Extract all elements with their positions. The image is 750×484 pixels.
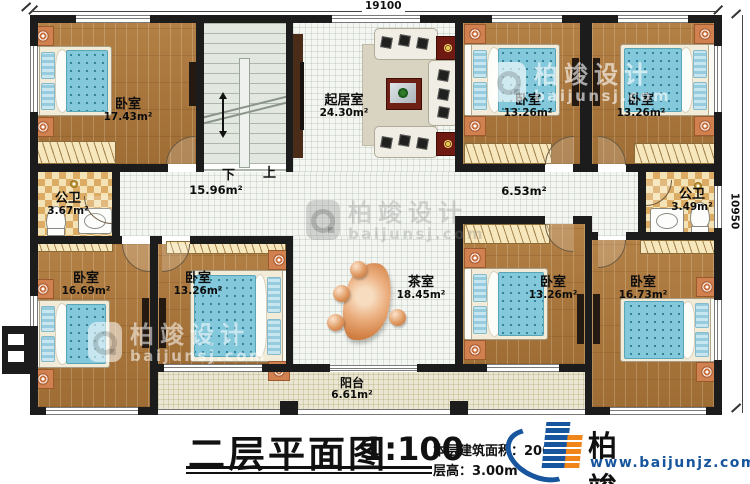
nightstand xyxy=(694,116,716,136)
tv-panel xyxy=(577,294,584,344)
dimension-tick xyxy=(713,5,723,15)
wall xyxy=(150,236,158,415)
title-underline xyxy=(186,466,432,469)
window xyxy=(164,364,262,372)
headboard xyxy=(465,45,472,115)
room-label-living: 起居室24.30m² xyxy=(320,94,369,119)
wardrobe xyxy=(634,143,718,164)
balcony-post xyxy=(280,401,298,415)
dimension-line-right xyxy=(742,15,743,413)
sofa xyxy=(374,28,438,60)
title-underline xyxy=(186,472,432,474)
bed xyxy=(32,46,112,116)
room-label-balcony: 阳台6.61m² xyxy=(331,377,372,401)
dimension-right-value: 10950 xyxy=(728,190,740,233)
room-label-tea-room: 茶室18.45m² xyxy=(397,276,446,301)
ceiling-lamp xyxy=(70,180,78,188)
sofa xyxy=(374,126,438,158)
balcony-railing xyxy=(158,409,588,415)
tv-panel xyxy=(572,58,579,106)
tea-stool xyxy=(333,285,350,302)
stair-down-label: 下 xyxy=(222,164,235,183)
pillow xyxy=(693,50,707,78)
break-mark xyxy=(731,9,741,18)
pillow xyxy=(41,52,55,79)
mattress xyxy=(66,304,106,365)
cushion xyxy=(398,34,411,47)
break-mark xyxy=(21,2,31,11)
arrow-up-head xyxy=(219,92,227,99)
tv-panel xyxy=(159,298,166,348)
room-label-bedroom-bottom-right: 卧室16.73m² xyxy=(619,276,668,301)
mattress xyxy=(66,50,108,113)
tv-panel xyxy=(142,298,149,348)
arrow-down-head xyxy=(219,131,227,138)
stair-direction-arrow xyxy=(222,96,224,134)
pillow xyxy=(41,336,55,362)
room-label-bedroom-bottom-left: 卧室16.69m² xyxy=(62,272,111,297)
cushion xyxy=(380,36,393,49)
room-label-bedroom-top-middle: 卧室13.26m² xyxy=(504,94,553,119)
company-site: www.baijunjz.com xyxy=(590,455,750,471)
wall xyxy=(580,15,592,172)
chimney-flue xyxy=(8,334,24,345)
tea-stool xyxy=(350,261,367,278)
cushion xyxy=(398,134,411,147)
balcony-post xyxy=(450,401,468,415)
pillow xyxy=(267,319,281,354)
floor-height-text: 层高：3.00m xyxy=(433,460,518,479)
wardrobe xyxy=(464,143,552,164)
sliding-door xyxy=(330,365,417,371)
pillow xyxy=(41,306,55,332)
nightstand xyxy=(694,24,716,44)
pillow xyxy=(693,82,707,110)
wardrobe xyxy=(34,141,116,164)
wall xyxy=(190,236,290,244)
cushion xyxy=(380,136,393,149)
room-label-bedroom-bottom-mid-left: 卧室13.26m² xyxy=(174,272,223,297)
wall xyxy=(585,216,592,415)
window xyxy=(30,296,38,326)
tv-screen xyxy=(300,62,304,130)
wall xyxy=(286,15,293,172)
tea-stool xyxy=(327,314,344,331)
wall xyxy=(455,216,545,224)
window xyxy=(76,15,150,23)
floor-plan-canvas: 19100 10950 xyxy=(0,0,750,484)
wall xyxy=(455,15,463,172)
wardrobe xyxy=(640,240,716,254)
wall xyxy=(30,164,168,172)
logo-building-orange xyxy=(564,434,583,468)
tv-panel xyxy=(593,294,600,344)
dimension-tick xyxy=(28,5,38,15)
chimney-flue xyxy=(8,351,24,362)
pillow xyxy=(473,50,487,78)
window xyxy=(332,15,420,23)
room-label-hallway-right: 6.53m² xyxy=(501,185,546,198)
bed xyxy=(620,298,718,362)
tv-panel xyxy=(593,58,600,106)
bed xyxy=(32,300,110,368)
window xyxy=(714,186,722,228)
nightstand xyxy=(464,248,486,268)
window xyxy=(610,407,706,415)
floor-balcony xyxy=(158,372,588,410)
plant xyxy=(397,87,409,99)
window xyxy=(618,15,688,23)
toilet-tank xyxy=(47,228,65,236)
room-label-bathroom-right: 公卫3.49m² xyxy=(671,188,712,213)
tv-panel xyxy=(189,62,196,106)
window xyxy=(714,300,722,360)
headboard xyxy=(465,269,472,339)
stair-up-label: 上 xyxy=(263,162,276,181)
sink-basin xyxy=(656,213,678,229)
drawing-title: 二层平面图 xyxy=(188,424,388,478)
pillow xyxy=(267,277,281,312)
tea-stool xyxy=(389,309,406,326)
room-label-hallway-left: 15.96m² xyxy=(189,184,242,197)
pillow xyxy=(41,83,55,110)
window xyxy=(714,46,722,112)
window xyxy=(46,407,138,415)
cushion xyxy=(416,137,429,150)
room-label-bedroom-top-right: 卧室13.26m² xyxy=(617,94,666,119)
wall xyxy=(118,236,122,244)
wall xyxy=(112,164,120,244)
wall xyxy=(196,15,204,172)
window xyxy=(492,15,562,23)
pillow xyxy=(473,82,487,110)
wardrobe xyxy=(464,224,550,244)
break-mark xyxy=(731,403,741,412)
room-label-bedroom-top-left: 卧室17.43m² xyxy=(104,98,153,123)
mattress xyxy=(624,301,684,358)
wall xyxy=(455,164,545,172)
wall xyxy=(455,216,463,372)
wall xyxy=(573,164,598,172)
window xyxy=(30,46,38,112)
pillow xyxy=(695,332,709,357)
company-brand: 柏竣建筑 xyxy=(588,423,624,484)
nightstand xyxy=(464,340,486,360)
wall xyxy=(638,164,646,240)
pillow xyxy=(473,306,487,334)
cushion xyxy=(437,88,450,101)
pillow xyxy=(695,303,709,328)
room-label-bathroom-left: 公卫3.67m² xyxy=(47,192,88,217)
nightstand xyxy=(464,116,486,136)
wall xyxy=(592,232,598,240)
wall xyxy=(30,236,118,244)
pillow xyxy=(473,274,487,302)
nightstand xyxy=(464,24,486,44)
armchair-pair xyxy=(428,60,458,126)
cushion xyxy=(416,37,429,50)
cushion xyxy=(437,69,450,82)
wall xyxy=(626,232,722,240)
window xyxy=(487,364,559,372)
room-label-bedroom-bottom-mid-right: 卧室13.26m² xyxy=(529,276,578,301)
wall xyxy=(286,236,293,372)
dimension-top-value: 19100 xyxy=(362,0,405,12)
cushion xyxy=(437,106,450,119)
